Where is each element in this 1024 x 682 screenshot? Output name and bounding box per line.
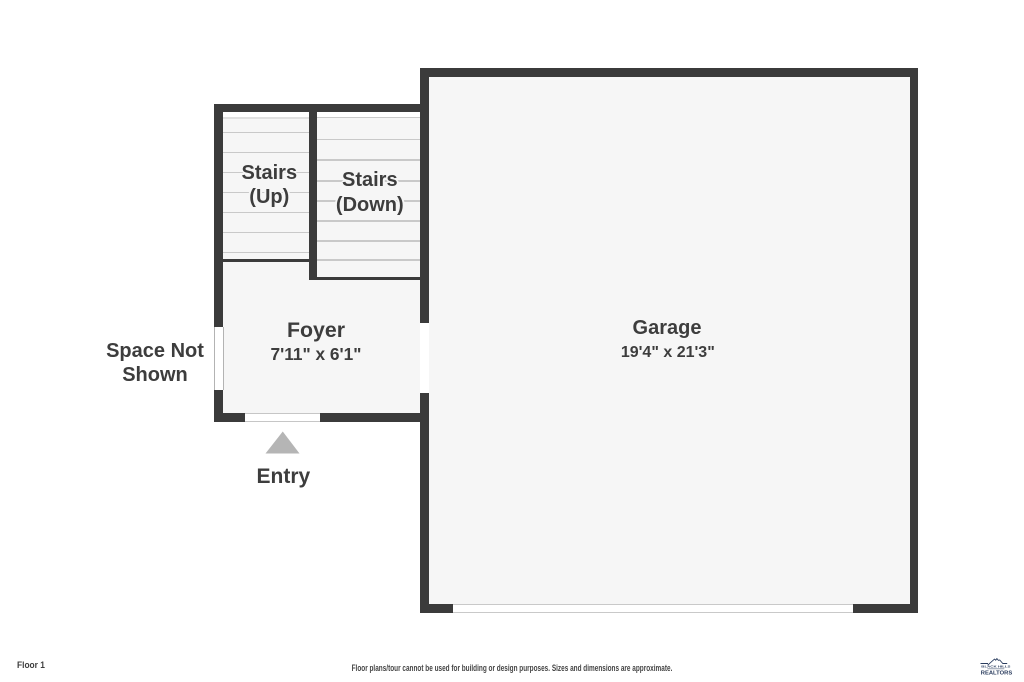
svg-text:BLACK HILLS: BLACK HILLS (981, 665, 1010, 669)
svg-text:REALTORS: REALTORS (981, 671, 1013, 677)
